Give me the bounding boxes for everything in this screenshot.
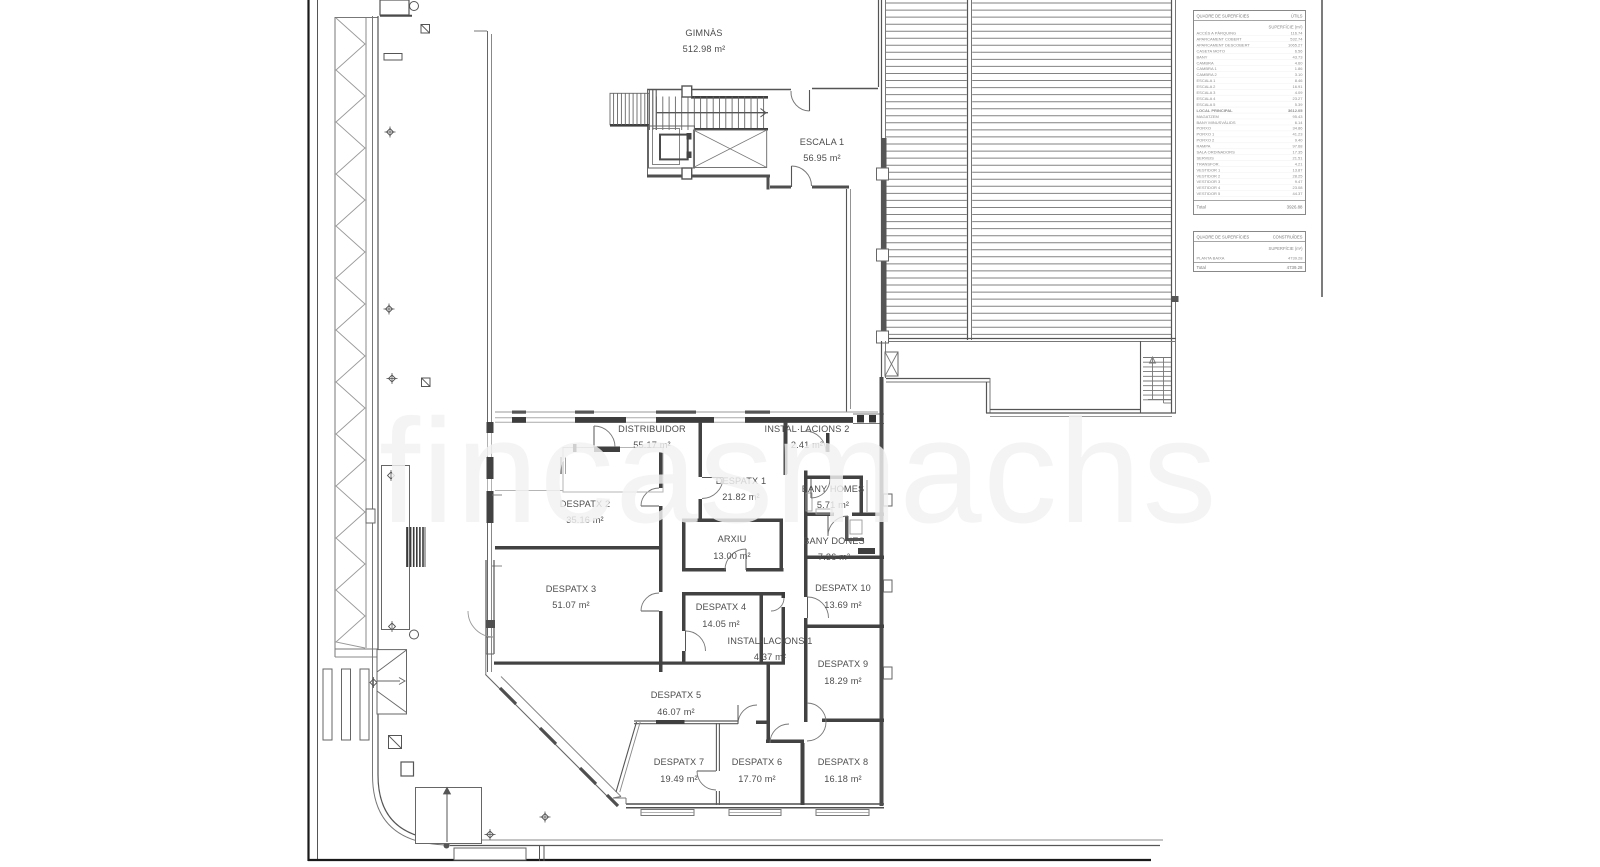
svg-text:512.98 m²: 512.98 m² — [683, 44, 726, 54]
svg-text:MAGATZEM: MAGATZEM — [1197, 114, 1219, 119]
svg-text:23.08: 23.08 — [1292, 185, 1303, 190]
svg-text:19.49 m²: 19.49 m² — [660, 774, 697, 784]
svg-text:9.40: 9.40 — [1295, 138, 1304, 143]
svg-text:16.18 m²: 16.18 m² — [824, 774, 861, 784]
svg-text:4739.28: 4739.28 — [1287, 265, 1303, 270]
svg-text:4739.28: 4739.28 — [1288, 256, 1303, 261]
svg-text:VESTIDOR 4: VESTIDOR 4 — [1197, 185, 1222, 190]
svg-text:PORXO: PORXO — [1197, 126, 1211, 131]
svg-text:BANY: BANY — [1197, 54, 1208, 59]
svg-text:16.91: 16.91 — [1292, 84, 1303, 89]
svg-text:3.10: 3.10 — [1295, 72, 1304, 77]
svg-text:APARCAMENT COBERT: APARCAMENT COBERT — [1197, 37, 1243, 42]
svg-text:PORXO 2: PORXO 2 — [1197, 138, 1216, 143]
svg-text:SUPERFÍCIE (m²): SUPERFÍCIE (m²) — [1269, 246, 1304, 251]
svg-text:44.37: 44.37 — [1292, 191, 1303, 196]
svg-text:QUADRE DE SUPERFÍCIES: QUADRE DE SUPERFÍCIES — [1197, 235, 1250, 240]
svg-text:DESPATX 9: DESPATX 9 — [818, 659, 869, 669]
svg-text:4.09: 4.09 — [1295, 90, 1304, 95]
svg-text:97.68: 97.68 — [1292, 144, 1303, 149]
svg-text:1065.27: 1065.27 — [1288, 42, 1303, 47]
svg-text:13.69 m²: 13.69 m² — [824, 600, 861, 610]
svg-text:CASETA MOTO: CASETA MOTO — [1197, 48, 1226, 53]
svg-text:SERVEIS: SERVEIS — [1197, 155, 1215, 160]
svg-text:21.51: 21.51 — [1292, 155, 1303, 160]
svg-text:6.14: 6.14 — [1295, 120, 1304, 125]
svg-text:DESPATX 4: DESPATX 4 — [696, 602, 747, 612]
svg-text:532.74: 532.74 — [1290, 37, 1303, 42]
svg-text:5.39: 5.39 — [1295, 102, 1304, 107]
svg-text:ESCALA 1: ESCALA 1 — [800, 137, 845, 147]
svg-text:RAMPA: RAMPA — [1197, 144, 1211, 149]
svg-text:ACCÉS A PÀRQUING: ACCÉS A PÀRQUING — [1197, 31, 1237, 36]
svg-text:ÚTILS: ÚTILS — [1291, 14, 1303, 19]
svg-text:17.70 m²: 17.70 m² — [738, 774, 775, 784]
svg-text:ESCALA 5: ESCALA 5 — [1197, 102, 1217, 107]
svg-text:APARCAMENT DESCOBERT: APARCAMENT DESCOBERT — [1197, 42, 1251, 47]
svg-text:DESPATX 6: DESPATX 6 — [732, 757, 783, 767]
svg-text:CONSTRUÏDES: CONSTRUÏDES — [1273, 235, 1303, 240]
svg-text:LOCAL PRINCIPAL: LOCAL PRINCIPAL — [1197, 108, 1234, 113]
svg-text:51.07 m²: 51.07 m² — [552, 600, 589, 610]
svg-text:ESCALA 3: ESCALA 3 — [1197, 90, 1217, 95]
svg-text:DESPATX 7: DESPATX 7 — [654, 757, 705, 767]
svg-text:43.73: 43.73 — [1292, 54, 1303, 59]
svg-text:6.56: 6.56 — [1295, 48, 1304, 53]
svg-text:QUADRE DE SUPERFÍCIES: QUADRE DE SUPERFÍCIES — [1197, 14, 1250, 19]
svg-text:4.37 m²: 4.37 m² — [754, 652, 786, 662]
svg-text:DESPATX 5: DESPATX 5 — [651, 690, 702, 700]
svg-text:56.95 m²: 56.95 m² — [803, 153, 840, 163]
svg-text:ESCALA 1: ESCALA 1 — [1197, 78, 1217, 83]
svg-text:23.27: 23.27 — [1292, 96, 1303, 101]
svg-text:46.07 m²: 46.07 m² — [657, 707, 694, 717]
svg-text:4.21: 4.21 — [1295, 161, 1304, 166]
svg-text:VESTIDOR 3: VESTIDOR 3 — [1197, 179, 1222, 184]
svg-text:DESPATX 8: DESPATX 8 — [818, 757, 869, 767]
svg-text:INSTAL·LACIONS 1: INSTAL·LACIONS 1 — [728, 636, 813, 646]
svg-text:GIMNÀS: GIMNÀS — [685, 28, 722, 38]
svg-text:34.86: 34.86 — [1292, 126, 1303, 131]
svg-text:SUPERFÍCIE (m²): SUPERFÍCIE (m²) — [1269, 25, 1304, 30]
svg-text:13.87: 13.87 — [1292, 167, 1303, 172]
svg-text:DESPATX 3: DESPATX 3 — [546, 584, 597, 594]
svg-text:BANY MINUSVÀLIDS: BANY MINUSVÀLIDS — [1197, 120, 1236, 125]
svg-text:CAMBRA 1: CAMBRA 1 — [1197, 66, 1218, 71]
svg-text:PORXO 1: PORXO 1 — [1197, 132, 1216, 137]
svg-text:95.43: 95.43 — [1292, 114, 1303, 119]
svg-text:VESTIDOR 5: VESTIDOR 5 — [1197, 191, 1222, 196]
svg-text:ESCALA 2: ESCALA 2 — [1197, 84, 1217, 89]
svg-text:18.29 m²: 18.29 m² — [824, 676, 861, 686]
svg-text:28.25: 28.25 — [1292, 173, 1303, 178]
svg-text:116.74: 116.74 — [1291, 31, 1304, 36]
svg-text:PLANTA BAIXA: PLANTA BAIXA — [1197, 256, 1225, 261]
svg-text:4.60: 4.60 — [1295, 60, 1304, 65]
svg-text:8.46: 8.46 — [1295, 78, 1304, 83]
svg-text:14.05 m²: 14.05 m² — [702, 619, 739, 629]
svg-text:9.47: 9.47 — [1295, 179, 1304, 184]
svg-text:3612.05: 3612.05 — [1288, 108, 1303, 113]
svg-text:fincasmachs: fincasmachs — [379, 389, 1218, 554]
svg-text:Total: Total — [1197, 205, 1206, 210]
svg-text:Total: Total — [1197, 265, 1206, 270]
svg-text:VESTIDOR 2: VESTIDOR 2 — [1197, 173, 1222, 178]
svg-text:ESCALA 4: ESCALA 4 — [1197, 96, 1217, 101]
svg-text:VESTIDOR 1: VESTIDOR 1 — [1197, 167, 1222, 172]
svg-text:CAMBRA: CAMBRA — [1197, 60, 1214, 65]
svg-text:1.86: 1.86 — [1295, 66, 1304, 71]
svg-text:41.23: 41.23 — [1292, 132, 1303, 137]
svg-text:TRANSFOR.: TRANSFOR. — [1197, 161, 1220, 166]
svg-text:3926.88: 3926.88 — [1287, 205, 1303, 210]
svg-text:CAMBRA 2: CAMBRA 2 — [1197, 72, 1218, 77]
svg-text:SALA ORDINADORS: SALA ORDINADORS — [1197, 150, 1236, 155]
svg-text:DESPATX 10: DESPATX 10 — [815, 583, 871, 593]
svg-text:17.35: 17.35 — [1292, 150, 1303, 155]
